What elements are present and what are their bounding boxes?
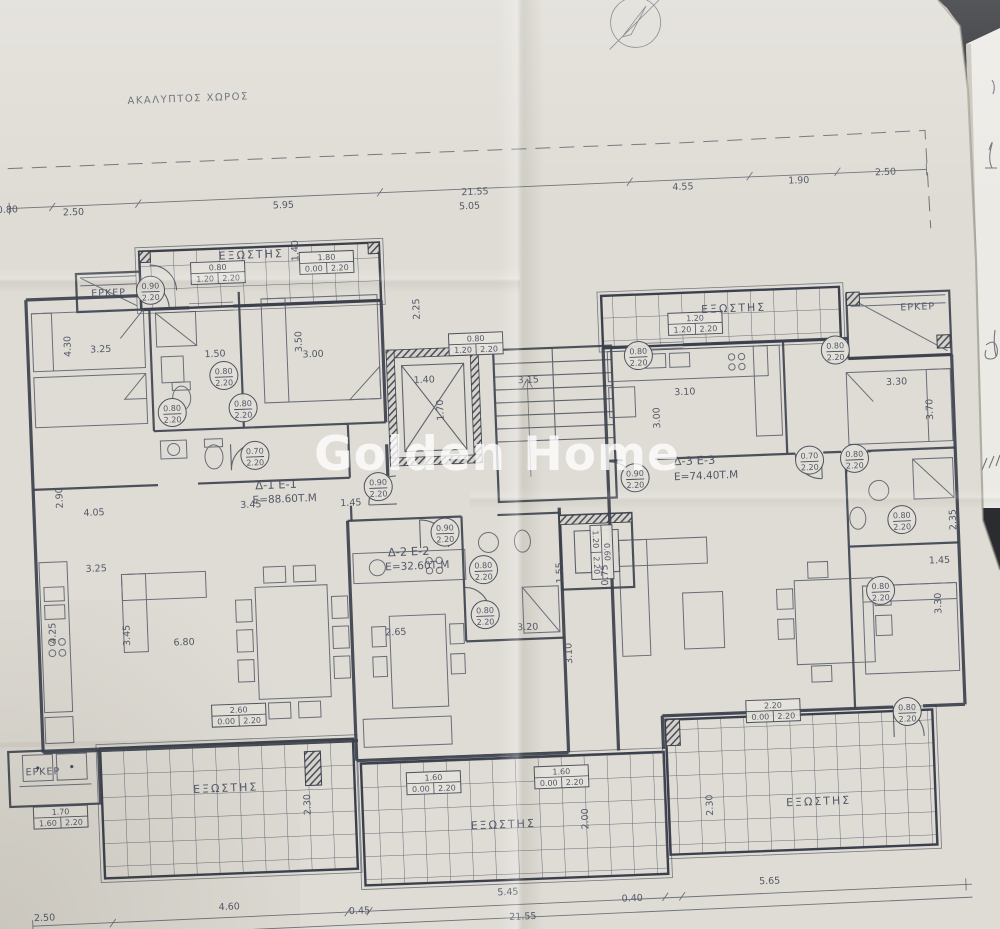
door-height-label: 2.20 bbox=[475, 572, 493, 582]
window-height-label: 2.20 bbox=[699, 324, 717, 334]
room-label: ΕΞΩΣΤΗΣ bbox=[786, 794, 852, 809]
door-size-badge: 0.802.20 bbox=[229, 393, 258, 422]
room-label: ΕΞΩΣΤΗΣ bbox=[218, 247, 284, 262]
door-width-label: 0.80 bbox=[629, 347, 647, 357]
door-width-label: 0.80 bbox=[234, 399, 252, 409]
dim-label: 1.50 bbox=[204, 348, 226, 360]
door-height-label: 2.20 bbox=[846, 461, 864, 471]
door-size-badge: 0.802.20 bbox=[840, 444, 869, 473]
door-width-label: 0.80 bbox=[898, 703, 916, 713]
window-sill-label: 0.00 bbox=[751, 712, 769, 722]
door-width-label: 0.80 bbox=[163, 404, 181, 414]
dim-label: 1.45 bbox=[340, 497, 362, 509]
dim-label: 4.30 bbox=[62, 336, 74, 358]
dim-label: 2.25 bbox=[411, 298, 423, 320]
window-sill-label: 1.20 bbox=[673, 325, 691, 335]
window-size-tag: 0.801.202.20 bbox=[448, 332, 503, 356]
dim-label: 1.70 bbox=[435, 399, 447, 421]
door-height-label: 2.20 bbox=[215, 378, 233, 388]
dim-label: 2.00 bbox=[580, 808, 592, 830]
window-height-label: 2.20 bbox=[480, 344, 498, 354]
dim-label: 3.25 bbox=[85, 563, 107, 575]
door-height-label: 2.20 bbox=[801, 463, 819, 473]
window-sill-label: 0.00 bbox=[412, 784, 430, 794]
dim-label: 3.10 bbox=[563, 643, 575, 665]
dim-label: 3.00 bbox=[302, 349, 324, 361]
dim-label: 0.45 bbox=[349, 905, 371, 917]
area-label: Ε=88.60Τ.Μ bbox=[252, 492, 317, 506]
door-height-label: 2.20 bbox=[142, 293, 160, 303]
door-width-label: 0.80 bbox=[476, 606, 494, 616]
area-label: Ε=74.40Τ.Μ bbox=[674, 469, 739, 483]
door-size-badge: 0.702.20 bbox=[240, 441, 269, 470]
door-width-label: 0.80 bbox=[893, 511, 911, 521]
apt-label: Δ-2 Ε-2 bbox=[388, 544, 430, 560]
dim-label: 3.70 bbox=[924, 399, 936, 421]
dim-label: 2.35 bbox=[948, 509, 960, 531]
dim-label: 3.00 bbox=[651, 407, 663, 429]
dim-label: 3.30 bbox=[933, 592, 945, 614]
area-label: Ε=32.60Τ.Μ bbox=[385, 559, 450, 573]
door-size-badge: 0.902.20 bbox=[431, 518, 460, 547]
dim-label: 1.40 bbox=[290, 240, 302, 262]
floor-plan-photo: Photo of architectural floor plan drawin… bbox=[0, 0, 1000, 929]
door-size-badge: 0.802.20 bbox=[624, 341, 653, 370]
door-size-badge: 0.802.20 bbox=[209, 361, 238, 390]
door-size-badge: 0.802.20 bbox=[471, 600, 500, 629]
dim-label: 0.75 bbox=[599, 564, 611, 586]
door-width-label: 0.70 bbox=[800, 451, 818, 461]
door-size-badge: 0.802.20 bbox=[158, 398, 187, 427]
door-size-badge: 0.702.20 bbox=[795, 446, 824, 475]
apt-label: Δ-1 Ε-1 bbox=[255, 477, 297, 493]
window-height-label: 2.20 bbox=[777, 711, 795, 721]
door-height-label: 2.20 bbox=[234, 410, 252, 420]
window-width-label: 0.60 bbox=[602, 543, 612, 561]
door-size-badge: 0.802.20 bbox=[866, 576, 895, 605]
door-size-badge: 0.802.20 bbox=[821, 335, 850, 364]
window-sill-label: 1.20 bbox=[454, 345, 472, 355]
dim-label: 0.40 bbox=[621, 893, 643, 905]
window-width-label: 2.20 bbox=[764, 701, 782, 711]
watermark: Golden Home bbox=[314, 427, 680, 482]
balcony-bottom-right bbox=[661, 705, 941, 858]
door-width-label: 0.70 bbox=[246, 447, 264, 457]
window-size-tag: 2.200.002.20 bbox=[746, 699, 801, 723]
dim-label: 2.30 bbox=[704, 794, 716, 816]
door-height-label: 2.20 bbox=[436, 535, 454, 545]
door-width-label: 0.80 bbox=[871, 582, 889, 592]
door-width-label: 0.80 bbox=[845, 450, 863, 460]
window-height-label: 2.20 bbox=[438, 783, 456, 793]
door-size-badge: 0.802.20 bbox=[893, 697, 922, 726]
window-width-label: 1.60 bbox=[424, 773, 442, 783]
window-width-label: 1.60 bbox=[552, 767, 570, 777]
dim-label: 2.90 bbox=[54, 487, 66, 509]
window-size-tag: 1.600.002.20 bbox=[406, 771, 461, 795]
bay-label: ΕΡΚΕΡ bbox=[900, 301, 935, 313]
window-sill-label: 1.20 bbox=[591, 530, 601, 548]
room-label: ΕΞΩΣΤΗΣ bbox=[701, 301, 767, 316]
dim-label: 1.45 bbox=[929, 555, 951, 567]
door-height-label: 2.20 bbox=[872, 593, 890, 603]
door-width-label: 0.80 bbox=[826, 341, 844, 351]
dim-label: 3.25 bbox=[90, 344, 112, 356]
dim-label: 2.65 bbox=[385, 627, 407, 639]
door-height-label: 2.20 bbox=[246, 458, 264, 468]
door-height-label: 2.20 bbox=[630, 358, 648, 368]
door-height-label: 2.20 bbox=[369, 489, 387, 499]
dim-label: 2.30 bbox=[302, 794, 314, 816]
dim-label: 3.30 bbox=[886, 376, 908, 388]
dim-label: 1.40 bbox=[413, 374, 435, 386]
door-height-label: 2.20 bbox=[827, 353, 845, 363]
window-width-label: 1.80 bbox=[317, 253, 335, 263]
door-width-label: 0.80 bbox=[474, 561, 492, 571]
dim-label: 3.10 bbox=[674, 386, 696, 398]
door-height-label: 2.20 bbox=[898, 714, 916, 724]
door-width-label: 0.80 bbox=[215, 367, 233, 377]
door-width-label: 0.90 bbox=[436, 523, 454, 533]
dim-label: 3.45 bbox=[240, 499, 262, 511]
window-width-label: 0.80 bbox=[467, 334, 485, 344]
door-height-label: 2.20 bbox=[476, 617, 494, 627]
door-height-label: 2.20 bbox=[163, 415, 181, 425]
dim-label: 5.65 bbox=[759, 876, 781, 888]
door-size-badge: 0.802.20 bbox=[469, 555, 498, 584]
window-height-label: 2.20 bbox=[566, 777, 584, 787]
dim-label: 1.55 bbox=[554, 562, 566, 584]
door-height-label: 2.20 bbox=[893, 522, 911, 532]
dim-label: 4.05 bbox=[83, 507, 105, 519]
